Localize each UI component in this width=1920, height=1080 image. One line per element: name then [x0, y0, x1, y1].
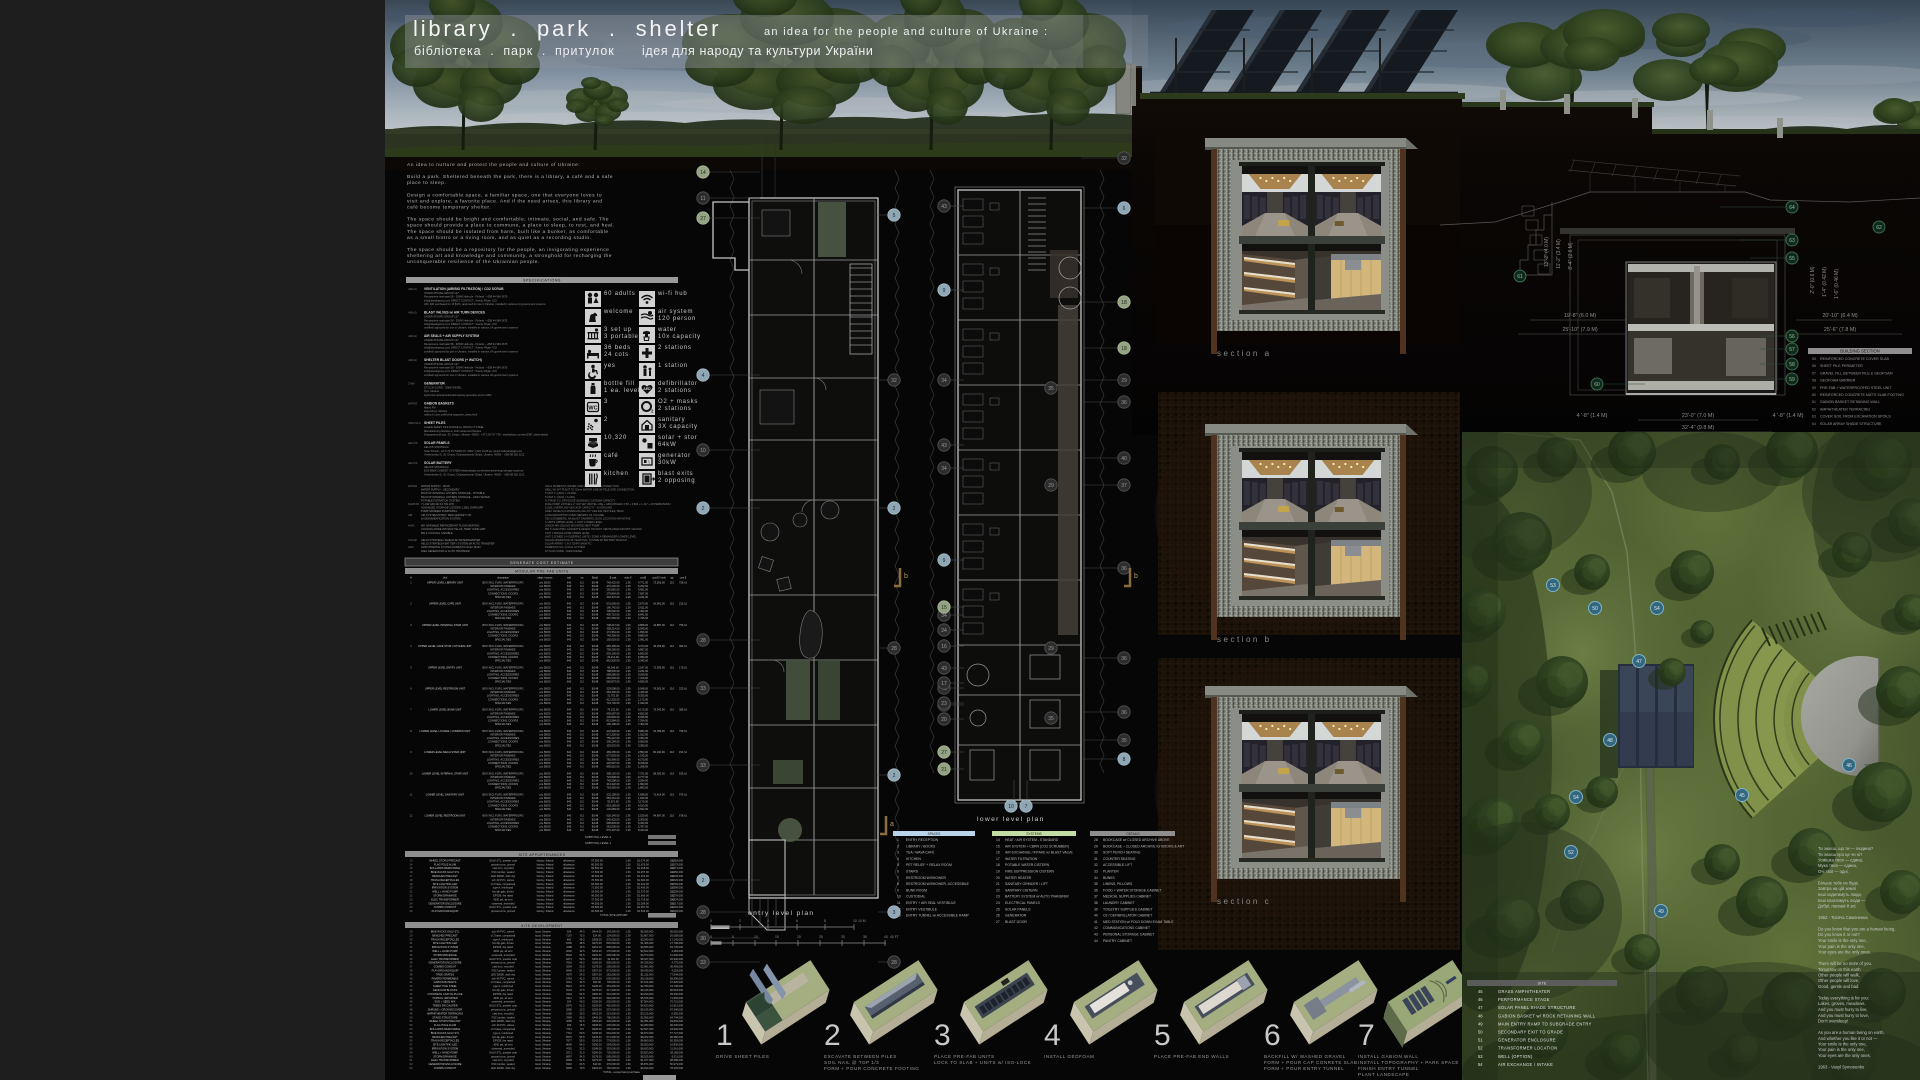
- svg-text:13WHEEL STOPS PRECASTGALV STL,: 13WHEEL STOPS PRECASTGALV STL, powder co…: [410, 858, 684, 862]
- svg-text:WATER FILTRATION: WATER FILTRATION: [1005, 857, 1038, 861]
- svg-text:38: 38: [1094, 901, 1098, 905]
- svg-text:50STAGE STRUCTUREFSC lumber, s: 50STAGE STRUCTUREFSC lumber, sealedlocal…: [410, 1015, 684, 1019]
- svg-text:36: 36: [1121, 400, 1127, 406]
- svg-text:LIGHTING, ACCESSORIESp/u 58/20: LIGHTING, ACCESSORIESp/u 58/206408.2$/14…: [487, 715, 649, 719]
- svg-text:STAIRS: STAIRS: [906, 870, 919, 874]
- svg-text:SPECIALTIESp/u 58/206408.2$/14: SPECIALTIESp/u 58/206408.2$/148763,655.0…: [495, 786, 649, 790]
- svg-text:44CONCRETE CAST-IN-PLACEEPS39,: 44CONCRETE CAST-IN-PLACEEPS39, fire rate…: [410, 992, 684, 996]
- svg-text:34: 34: [941, 613, 947, 619]
- svg-text:24: 24: [996, 901, 1000, 905]
- svg-text:COOLING MODE W/6,916F TELUS, T: COOLING MODE W/6,916F TELUS, TEMP COND H…: [421, 527, 486, 531]
- svg-text:SECONDARY EXIT TO GRADE: SECONDARY EXIT TO GRADE: [1498, 1030, 1563, 1035]
- svg-text:11: 11: [897, 901, 901, 905]
- svg-text:COVER SOIL FROM EXCAVATION SPO: COVER SOIL FROM EXCAVATION SPOILS: [1820, 415, 1891, 419]
- svg-text:AIR SYSTEM ATSMO" MED AERODITY: AIR SYSTEM ATSMO" MED AERODITY-35: [421, 513, 472, 517]
- svg-text:Добрі, ласкаві й злі.: Добрі, ласкаві й злі.: [1818, 904, 1857, 909]
- svg-text:BOOKCASE – CLOSED ARCHIVE for: BOOKCASE – CLOSED ARCHIVE for BOOKS & AR…: [1103, 844, 1184, 848]
- svg-text:1'-4" (0.42 M): 1'-4" (0.42 M): [1822, 267, 1828, 297]
- svg-text:20INCH MR CEILING MOUNTED HEA: 20INCH MR CEILING MOUNTED HEAT PUMP: [545, 524, 600, 528]
- svg-text:1: 1: [716, 1019, 733, 1052]
- svg-text:17: 17: [996, 857, 1000, 861]
- svg-text:INSTALL GABION WALL: INSTALL GABION WALL: [1358, 1054, 1418, 1059]
- svg-text:VENTILATION (AIR/BIO FILTRATIO: VENTILATION (AIR/BIO FILTRATION) / CO2 S…: [424, 287, 504, 291]
- svg-text:PERSONAL STORAGE CABINET: PERSONAL STORAGE CABINET: [1103, 933, 1154, 937]
- svg-text:INTERIOR FINISHESp/u 58/206408: INTERIOR FINISHESp/u 58/206408.2$/148695…: [490, 711, 648, 715]
- svg-text:36: 36: [1121, 710, 1127, 716]
- svg-text:SPECIALS: SPECIALS: [408, 421, 421, 425]
- svg-text:Your eyes are the only ones.: Your eyes are the only ones.: [1818, 950, 1871, 955]
- svg-text:57: 57: [1789, 347, 1795, 353]
- svg-text:Don't oversleep!: Don't oversleep!: [1818, 1019, 1848, 1024]
- svg-text:18: 18: [996, 863, 1000, 867]
- svg-text:59WELL + HAND PUMPGALV STL, po: 59WELL + HAND PUMPGALV STL, powder coatl…: [410, 1050, 684, 1054]
- svg-text:SITE DEVELOPMENT: SITE DEVELOPMENT: [521, 924, 563, 928]
- svg-text:57SITE LIGHTING LED4000 psi, a: 57SITE LIGHTING LED4000 psi, air entrloc…: [410, 1043, 684, 1047]
- svg-text:CONNECTIONS, DOORSp/u 58/20640: CONNECTIONS, DOORSp/u 58/206408.2$/14861…: [488, 803, 649, 807]
- svg-text:PLANTER: PLANTER: [1103, 870, 1119, 874]
- svg-text:GEN: GEN: [408, 545, 414, 549]
- svg-text:64: 64: [1812, 422, 1816, 426]
- svg-text:INSTALL TOPOGRAPHY + PARK SPAC: INSTALL TOPOGRAPHY + PARK SPACE: [1358, 1060, 1459, 1065]
- svg-text:Do you know it or not?: Do you know it or not?: [1818, 932, 1860, 937]
- svg-text:6: 6: [1123, 206, 1126, 212]
- svg-text:CONNECTIONS, DOORSp/u 58/20640: CONNECTIONS, DOORSp/u 58/206408.2$/14829…: [488, 655, 649, 659]
- svg-text:ARI, 300 purchased for 16 $17k: ARI, 300 purchased for 16 $17k, approved…: [424, 302, 546, 306]
- svg-text:7: 7: [1358, 1019, 1375, 1052]
- svg-text:29: 29: [1048, 483, 1054, 489]
- svg-text:35: 35: [1048, 386, 1054, 392]
- svg-text:info@atsafegroup.com: info@atsafegroup.com DIRECT CONTACT : Ks…: [424, 298, 497, 302]
- svg-text:10: 10: [700, 448, 706, 454]
- svg-text:LAUNDRY CABINET: LAUNDRY CABINET: [1103, 901, 1135, 905]
- svg-text:info@atsafegroup.com: info@atsafegroup.com DIRECT CONTACT : Ks…: [424, 369, 497, 373]
- svg-text:1'-6" (0.46 M): 1'-6" (0.46 M): [1834, 269, 1840, 299]
- svg-text:CONNECTIONS, DOORSp/u 58/20640: CONNECTIONS, DOORSp/u 58/206408.2$/14881…: [488, 719, 649, 723]
- svg-text:Other people will love,: Other people will love,: [1818, 978, 1859, 983]
- svg-text:section a: section a: [1217, 349, 1272, 358]
- svg-text:14: 14: [700, 170, 706, 176]
- svg-text:20: 20: [996, 876, 1000, 880]
- svg-text:3: 3: [897, 851, 899, 855]
- svg-text:10 M: 10 M: [858, 919, 866, 923]
- svg-text:56TRASH RECEPTACLESEPS39, fire: 56TRASH RECEPTACLESEPS39, fire ratedloca…: [410, 1039, 684, 1043]
- svg-text:46: 46: [1478, 997, 1483, 1002]
- svg-text:Інші кохатимуть люди —: Інші кохатимуть люди —: [1818, 898, 1866, 903]
- svg-text:10: 10: [897, 895, 901, 899]
- svg-text:LINENS, PILLOWS: LINENS, PILLOWS: [1103, 882, 1133, 886]
- svg-text:25: 25: [819, 935, 823, 939]
- svg-text:60: 60: [1594, 382, 1600, 388]
- svg-text:TEA / WAVA CAFÉ: TEA / WAVA CAFÉ: [906, 850, 935, 855]
- svg-text:COMMUNICATIONS CABINET: COMMUNICATIONS CABINET: [1103, 926, 1150, 930]
- svg-text:52: 52: [1568, 850, 1574, 856]
- svg-text:63: 63: [1789, 238, 1795, 244]
- svg-text:36: 36: [1121, 656, 1127, 662]
- svg-text:7: 7: [897, 876, 899, 880]
- svg-text:29: 29: [1048, 646, 1054, 652]
- svg-text:6: 6: [796, 919, 798, 923]
- svg-text:CONNECTIONS, DOORSp/u 58/20640: CONNECTIONS, DOORSp/u 58/206408.2$/14861…: [488, 697, 649, 701]
- svg-text:WATER: WATER: [408, 484, 417, 488]
- svg-text:54: 54: [1478, 1062, 1483, 1067]
- svg-text:DOMESTIC UA / LOCAL SYSTEM: DOMESTIC UA / LOCAL SYSTEM: [545, 545, 585, 549]
- svg-text:35: 35: [1094, 882, 1098, 886]
- svg-text:43: 43: [941, 443, 947, 449]
- svg-text:51WHEEL STOPS PRECASTLED 3000K: 51WHEEL STOPS PRECASTLED 3000K, dark sky…: [410, 1019, 684, 1023]
- svg-text:1952 - Тисяча Симоненка: 1952 - Тисяча Симоненка: [1818, 915, 1868, 920]
- svg-text:Maltry FM: Maltry FM: [424, 405, 436, 409]
- svg-text:2: 2: [702, 878, 705, 884]
- svg-text:GREY LEVELS (G.RIVER/LIN) GR+T: GREY LEVELS (G.RIVER/LIN) GR+TO" CEILING…: [545, 509, 624, 513]
- svg-text:24: 24: [941, 628, 947, 634]
- svg-text:29: 29: [1121, 378, 1127, 384]
- svg-text:8'-4" (2.6 M): 8'-4" (2.6 M): [1568, 242, 1574, 270]
- svg-text:INSTALL GEOFOAM: INSTALL GEOFOAM: [1044, 1054, 1094, 1059]
- svg-text:LIGHTING, ACCESSORIESp/u 58/20: LIGHTING, ACCESSORIESp/u 58/206408.2$/14…: [487, 736, 649, 740]
- svg-text:23ELEC TRANSFORMER4000 psi, ai: 23ELEC TRANSFORMER4000 psi, air entrfact…: [410, 897, 684, 901]
- svg-text:56: 56: [1789, 334, 1795, 340]
- svg-text:46: 46: [1846, 763, 1852, 769]
- svg-text:AIR(x2): AIR(x2): [408, 311, 417, 315]
- svg-text:CONNECTIONS, DOORSp/u 58/20640: CONNECTIONS, DOORSp/u 58/206408.2$/14874…: [488, 634, 649, 638]
- svg-text:9LOWER LEVEL MECH STAIR UNITBO: 9LOWER LEVEL MECH STAIR UNITBOX INCL FLR…: [410, 750, 687, 754]
- svg-text:17: 17: [941, 681, 947, 687]
- svg-text:5 UNIT X 1,824L = 24,000L: 5 UNIT X 1,824L = 24,000L: [545, 491, 577, 495]
- svg-text:48: 48: [1607, 738, 1613, 744]
- svg-text:Today everything is for you:: Today everything is for you:: [1818, 996, 1869, 1001]
- svg-text:48SHRUBS + GROUNDCOVERprecast: 48SHRUBS + GROUNDCOVERprecast conc, pinn…: [410, 1008, 684, 1012]
- svg-text:REINFORCED CONCRETE MAT'S SLAB: REINFORCED CONCRETE MAT'S SLAB FOOTING: [1820, 393, 1904, 397]
- svg-text:GEOFOAM BARRIER: GEOFOAM BARRIER: [1820, 379, 1856, 383]
- svg-text:25: 25: [996, 907, 1000, 911]
- svg-text:GENERATE COST ESTIMATE: GENERATE COST ESTIMATE: [510, 561, 574, 565]
- svg-text:MR 7x ELECTRIC CASSETTE HEADS: MR 7x ELECTRIC CASSETTE HEADS ON SOFT VE…: [545, 527, 642, 531]
- svg-text:CONNECTIONS, DOORSp/u 58/20640: CONNECTIONS, DOORSp/u 58/206408.2$/14827…: [488, 591, 649, 595]
- svg-text:18TRASH RECEPTACLESsch 40 PVC,: 18TRASH RECEPTACLESsch 40 PVC, valvesfac…: [410, 878, 684, 882]
- svg-text:Zaporizhya, Ukraine: Zaporizhya, Ukraine: [424, 409, 448, 413]
- svg-text:entry level plan: entry level plan: [748, 910, 815, 917]
- svg-text:SOLAR PANELS: SOLAR PANELS: [424, 441, 450, 445]
- svg-text:13'-2" (4.0 M): 13'-2" (4.0 M): [1544, 237, 1550, 267]
- svg-text:maltry.fm.com.ua/find-ka-organ: maltry.fm.com.ua/find-ka-organizer_ideas…: [424, 413, 478, 417]
- svg-text:23'-0" (7.0 M): 23'-0" (7.0 M): [1682, 413, 1715, 419]
- svg-text:52: 52: [1478, 1046, 1483, 1051]
- svg-text:61: 61: [1812, 400, 1816, 404]
- svg-text:35ELEC TRANSFORMERGALV STL, po: 35ELEC TRANSFORMERGALV STL, powder coatl…: [410, 957, 684, 961]
- svg-text:20'-10" (6.4 M): 20'-10" (6.4 M): [1822, 313, 1858, 319]
- svg-text:15BOLLARDS REMOVABLEcast iron,: 15BOLLARDS REMOVABLEcast iron, recycledf…: [410, 866, 684, 870]
- svg-text:SPECIALTIESp/u 58/206408.2$/14: SPECIALTIESp/u 58/206408.2$/148192,619.0…: [495, 637, 649, 641]
- svg-text:1: 1: [897, 838, 899, 842]
- svg-text:36GENERATOR ENCLOSUREprecast c: 36GENERATOR ENCLOSUREprecast conc, pinne…: [410, 961, 684, 965]
- svg-text:LIGHTING, ACCESSORIESp/u 58/20: LIGHTING, ACCESSORIESp/u 58/206408.2$/14…: [487, 651, 649, 655]
- svg-text:2: 2: [893, 506, 896, 512]
- svg-text:AIR: AIR: [408, 513, 412, 517]
- svg-text:Remarovere marinade 58 - 30540: Remarovere marinade 58 - 30540 Helmole -…: [424, 366, 508, 370]
- svg-text:54: 54: [1573, 795, 1579, 801]
- svg-text:GRAVEL FILL BETWEEN PILE & GEO: GRAVEL FILL BETWEEN PILE & GEOFOAM: [1820, 371, 1893, 375]
- svg-text:SOLAR PANEL SHADE STRUCTURE: SOLAR PANEL SHADE STRUCTURE: [1498, 1005, 1576, 1010]
- svg-text:12LOWER LEVEL RESTROOM UNITBOX: 12LOWER LEVEL RESTROOM UNITBOX INCL FLRS…: [410, 814, 688, 818]
- svg-text:SOLAR BATTERY: SOLAR BATTERY: [424, 461, 452, 465]
- svg-text:SUBTOTAL LEVEL 2: SUBTOTAL LEVEL 2: [585, 835, 612, 839]
- svg-text:TRANSFORMER LOCATION: TRANSFORMER LOCATION: [1498, 1046, 1557, 1051]
- svg-text:47: 47: [1478, 1005, 1483, 1010]
- svg-text:RESTROOM W/SHOWER, ACCESSIBLE: RESTROOM W/SHOWER, ACCESSIBLE: [906, 882, 970, 886]
- svg-text:RESTROOM W/SHOWER: RESTROOM W/SHOWER: [906, 876, 946, 880]
- svg-text:unconquerable resilience of th: unconquerable resilience of the Ukrainia…: [407, 259, 540, 265]
- svg-text:29BENCHES PRECASTcl 2 base, co: 29BENCHES PRECASTcl 2 base, compactedloc…: [410, 933, 684, 937]
- svg-text:39TREE GRATESLED 3000K, dark s: 39TREE GRATESLED 3000K, dark skylocal, U…: [410, 972, 684, 976]
- svg-text:Other people will walk,: Other people will walk,: [1818, 973, 1860, 978]
- svg-text:32IRRIGATION SYSTEMEPS39, fire: 32IRRIGATION SYSTEMEPS39, fire ratedloca…: [410, 945, 684, 949]
- svg-text:20IRRIGATION SYSTEMtype A, rei: 20IRRIGATION SYSTEMtype A, reinforcedfac…: [410, 886, 684, 890]
- svg-text:BACKFILL W/ WASHED GRAVEL: BACKFILL W/ WASHED GRAVEL: [1264, 1054, 1346, 1059]
- svg-text:38PLAYGROUND EQUIPFSC lumber,: 38PLAYGROUND EQUIPFSC lumber, sealedloca…: [410, 969, 684, 973]
- svg-text:43: 43: [941, 666, 947, 672]
- svg-text:CONNECTIONS, DOORSp/u 58/20640: CONNECTIONS, DOORSp/u 58/206408.2$/14840…: [488, 613, 649, 617]
- svg-text:10: 10: [754, 935, 758, 939]
- svg-text:SPECIALTIESp/u 58/206408.2$/14: SPECIALTIESp/u 58/206408.2$/148132,683.0…: [495, 807, 649, 811]
- svg-text:19'-8" (6.0 M): 19'-8" (6.0 M): [1564, 313, 1597, 319]
- svg-text:34STORM DRAINAGEscreened, amen: 34STORM DRAINAGEscreened, amendedlocal, …: [410, 953, 684, 957]
- svg-text:as a small bistro or a living: as a small bistro or a living room, and …: [407, 235, 592, 241]
- svg-text:5: 5: [732, 935, 734, 939]
- svg-text:LIGHTING, ACCESSORIESp/u 58/20: LIGHTING, ACCESSORIESp/u 58/206408.2$/14…: [487, 609, 649, 613]
- svg-text:UNIAIR ATSAFE-GROUP 127: UNIAIR ATSAFE-GROUP 127: [424, 315, 459, 319]
- svg-text:43: 43: [941, 204, 947, 210]
- svg-text:5: 5: [897, 863, 899, 867]
- svg-text:GRASS AMPHITHEATER: GRASS AMPHITHEATER: [1498, 989, 1550, 994]
- svg-text:PLACE PRE-FAB END WALLS: PLACE PRE-FAB END WALLS: [1154, 1054, 1229, 1059]
- svg-text:49: 49: [1658, 909, 1664, 915]
- svg-text:10: 10: [1008, 804, 1014, 810]
- svg-text:10LOWER LEVEL INTERNAL STAIR U: 10LOWER LEVEL INTERNAL STAIR UNITBOX INC…: [410, 771, 688, 775]
- svg-text:26: 26: [996, 914, 1000, 918]
- svg-text:34: 34: [1094, 876, 1098, 880]
- svg-text:CONNECTIONS, DOORSp/u 58/20640: CONNECTIONS, DOORSp/u 58/206408.2$/14831…: [488, 782, 649, 786]
- svg-text:STYLON CORD - 30kW DIESEL: STYLON CORD - 30kW DIESEL: [545, 549, 583, 553]
- svg-text:33: 33: [1094, 870, 1098, 874]
- svg-text:Remarovere marinade 58 - 30540: Remarovere marinade 58 - 30540 Helmole -…: [424, 318, 508, 322]
- svg-text:certified/ approved for use in: certified/ approved for use in Ukraine, …: [424, 349, 519, 353]
- svg-text:43: 43: [1094, 933, 1098, 937]
- svg-text:PERFORMANCE STAGE: PERFORMANCE STAGE: [1498, 997, 1550, 1002]
- svg-text:SUBTOTAL LEVEL 1: SUBTOTAL LEVEL 1: [585, 841, 612, 845]
- svg-text:And you must hurry to love,: And you must hurry to love,: [1818, 1013, 1869, 1018]
- svg-text:30: 30: [841, 935, 845, 939]
- svg-text:63: 63: [1812, 415, 1816, 419]
- svg-text:FINISH ENTRY TUNNEL: FINISH ENTRY TUNNEL: [1358, 1066, 1419, 1071]
- svg-text:LIGHTING, ACCESSORIESp/u 58/20: LIGHTING, ACCESSORIESp/u 58/206408.2$/14…: [487, 757, 649, 761]
- svg-text:1UPPER LEVEL LIBRARY UNITBOX I: 1UPPER LEVEL LIBRARY UNITBOX INCL FLRS, …: [410, 581, 687, 585]
- svg-text:LIGHTING, ACCESSORIESp/u 58/20: LIGHTING, ACCESSORIESp/u 58/206408.2$/14…: [487, 673, 649, 677]
- svg-text:BACKUP INTERNAL CISTERN STORAG: BACKUP INTERNAL CISTERN STORAGE - GRAY W…: [421, 495, 490, 499]
- svg-text:CONNECTIONS, DOORSp/u 58/20640: CONNECTIONS, DOORSp/u 58/206408.2$/14820…: [488, 740, 649, 744]
- svg-text:INTERIOR FINISHESp/u 58/206408: INTERIOR FINISHESp/u 58/206408.2$/148788…: [490, 669, 648, 673]
- svg-text:28: 28: [1094, 838, 1098, 842]
- svg-text:14FLAG POLE ALUMprecast conc,: 14FLAG POLE ALUMprecast conc, pinnedfact…: [410, 862, 684, 866]
- svg-text:PUMP GRINDER PUMPS/MILL: PUMP GRINDER PUMPS/MILL: [421, 509, 458, 513]
- svg-text:2'-0" (0.6 M): 2'-0" (0.6 M): [1810, 266, 1816, 294]
- svg-text:SANITARY CISTERN: SANITARY CISTERN: [1005, 888, 1038, 892]
- svg-text:INTERIOR FINISHESp/u 58/206408: INTERIOR FINISHESp/u 58/206408.2$/148723…: [490, 775, 648, 779]
- svg-text:20: 20: [797, 935, 801, 939]
- svg-text:Ти знаєш про це чи ні?: Ти знаєш про це чи ні?: [1818, 852, 1863, 857]
- svg-text:LIGHTING, ACCESSORIESp/u 58/20: LIGHTING, ACCESSORIESp/u 58/206408.2$/14…: [487, 779, 649, 783]
- svg-text:2: 2: [739, 919, 741, 923]
- svg-text:8: 8: [1123, 757, 1126, 763]
- svg-text:16BIKE RACKS GALV STLFSC lumbe: 16BIKE RACKS GALV STLFSC lumber, sealedf…: [410, 870, 684, 874]
- svg-text:18: 18: [1121, 300, 1127, 306]
- svg-text:0: 0: [710, 935, 712, 939]
- svg-text:40: 40: [1121, 456, 1127, 462]
- svg-text:6UPPER LEVEL RESTROOM UNITBOX: 6UPPER LEVEL RESTROOM UNITBOX INCL FLRS,…: [410, 687, 687, 691]
- svg-text:visit and explore, a favorite: visit and explore, a favorite place. And…: [407, 198, 603, 204]
- svg-text:UNIT 1 SINGLE ZONE UPPER LEVE: UNIT 1 SINGLE ZONE UPPER LEVEL: [545, 531, 590, 535]
- svg-text:BUNK ROOM: BUNK ROOM: [906, 888, 927, 892]
- svg-text:15: 15: [996, 844, 1000, 848]
- svg-text:DRIVE SHEET PILES: DRIVE SHEET PILES: [716, 1054, 769, 1059]
- svg-text:Manufacturing facilities in bo: Manufacturing facilities in both Latvia …: [424, 429, 482, 433]
- svg-text:LIGHTING, ACCESSORIESp/u 58/20: LIGHTING, ACCESSORIESp/u 58/206408.2$/14…: [487, 694, 649, 698]
- svg-text:AIR EXCHANGE / INTAKE: AIR EXCHANGE / INTAKE: [1498, 1062, 1553, 1067]
- svg-text:AIR(x2): AIR(x2): [408, 287, 417, 291]
- svg-text:WATER SUPPLY - MAIN: WATER SUPPLY - MAIN: [421, 484, 450, 488]
- svg-text:KITCHEN: KITCHEN: [906, 857, 921, 861]
- svg-text:Інші ходитимуть люди,: Інші ходитимуть люди,: [1818, 892, 1862, 897]
- svg-text:47TREES 3IN CALIPERGALV STL, p: 47TREES 3IN CALIPERGALV STL, powder coat…: [410, 1004, 684, 1008]
- svg-text:POTABLE WATER CISTERN: POTABLE WATER CISTERN: [1005, 863, 1050, 867]
- svg-text:39: 39: [1094, 907, 1098, 911]
- svg-text:16: 16: [996, 851, 1000, 855]
- svg-text:Design a comfortable space, a: Design a comfortable space, a familiar s…: [407, 192, 602, 198]
- svg-text:28BIKE RACKS GALV STLsch 40 PV: 28BIKE RACKS GALV STLsch 40 PVC, valvesl…: [410, 930, 684, 934]
- svg-text:62: 62: [1812, 407, 1816, 411]
- svg-text:SOLAR ARRAY SHADE STRUCTURE: SOLAR ARRAY SHADE STRUCTURE: [1820, 422, 1882, 426]
- svg-text:STYLON CORD - 30kW DIESEL: STYLON CORD - 30kW DIESEL: [424, 385, 462, 389]
- svg-text:WATER: WATER: [408, 401, 417, 405]
- svg-text:25'-6" (7.8 M): 25'-6" (7.8 M): [1824, 327, 1857, 333]
- svg-text:36: 36: [1121, 566, 1127, 572]
- svg-text:33: 33: [700, 763, 706, 769]
- svg-text:AIR SEALS + AIR SUPPLY SYSTEM: AIR SEALS + AIR SUPPLY SYSTEM: [424, 334, 479, 338]
- svg-text:5,200L OVERFLOW / BACKUP CAPAC: 5,200L OVERFLOW / BACKUP CAPACITY - IN G…: [545, 506, 612, 510]
- svg-text:LOCK TO SLAB + UNITS w/ ISO-L: LOCK TO SLAB + UNITS w/ ISO-LOCK: [934, 1060, 1032, 1065]
- svg-text:51: 51: [1478, 1038, 1483, 1043]
- svg-text:SPECIALTIESp/u 58/206408.2$/14: SPECIALTIESp/u 58/206408.2$/148106,199.0…: [495, 722, 649, 726]
- svg-text:HELIOS: HELIOS: [408, 461, 418, 465]
- svg-text:10: 10: [853, 919, 857, 923]
- svg-text:WATER HEATER: WATER HEATER: [1005, 876, 1032, 880]
- svg-text:27: 27: [700, 216, 706, 222]
- svg-text:59: 59: [1812, 386, 1816, 390]
- svg-text:56: 56: [1812, 364, 1816, 368]
- svg-text:29: 29: [1094, 844, 1098, 848]
- svg-text:20: 20: [941, 717, 947, 723]
- svg-text:SOIL NAIL @ TOP 1/3: SOIL NAIL @ TOP 1/3: [824, 1060, 879, 1065]
- svg-text:60: 60: [1812, 393, 1816, 397]
- svg-text:61: 61: [1517, 274, 1523, 280]
- svg-text:HELIO STRATEGIA SHIELD W/ WATE: HELIO STRATEGIA SHIELD W/ WATERSMARTER: [421, 538, 480, 542]
- svg-text:certified/ approved for use in: certified/ approved for use in Ukraine, …: [424, 373, 519, 377]
- svg-text:MODULAR PRE-FAB UNITS: MODULAR PRE-FAB UNITS: [515, 570, 569, 574]
- svg-text:UNIAIR ATSAFE-GROUP 127: UNIAIR ATSAFE-GROUP 127: [424, 362, 459, 366]
- svg-text:45: 45: [1478, 989, 1483, 994]
- svg-text:28: 28: [700, 910, 706, 916]
- svg-text:13: 13: [897, 914, 901, 918]
- svg-text:5: 5: [1154, 1019, 1171, 1052]
- svg-text:MED STATION w/ FOLD DOWN EXAM: MED STATION w/ FOLD DOWN EXAM TABLE: [1103, 920, 1174, 924]
- svg-text:SOLAR PANELS: SOLAR PANELS: [1005, 907, 1031, 911]
- svg-text:49: 49: [1478, 1021, 1483, 1026]
- svg-text:GENERATOR ENCLOSURE: GENERATOR ENCLOSURE: [1498, 1038, 1556, 1043]
- svg-text:Your pain is the only one,: Your pain is the only one,: [1818, 944, 1865, 949]
- svg-text:5UPPER LEVEL ENTRY UNITBOX INC: 5UPPER LEVEL ENTRY UNITBOX INCL FLRS, WA…: [410, 665, 687, 669]
- svg-text:34: 34: [941, 378, 947, 384]
- svg-text:GABION BASKET w/ ROCK RETAININ: GABION BASKET w/ ROCK RETAINING WALL: [1498, 1013, 1596, 1018]
- svg-text:AMPHITHEATER TERRACING: AMPHITHEATER TERRACING: [1820, 407, 1870, 411]
- svg-text:37COMMS CONDUITcast iron, recy: 37COMMS CONDUITcast iron, recycledlocal,…: [410, 965, 684, 969]
- svg-text:2: 2: [897, 844, 899, 848]
- svg-text:50: 50: [1592, 606, 1598, 612]
- svg-text:Kyiv, Ukraine: Kyiv, Ukraine: [424, 389, 440, 393]
- svg-text:SHEET PILE PERIMETER: SHEET PILE PERIMETER: [1820, 364, 1863, 368]
- svg-text:SPECIALTIESp/u 58/206408.2$/14: SPECIALTIESp/u 58/206408.2$/148267,666.0…: [495, 616, 649, 620]
- svg-text:LIBRARY / BOOKS: LIBRARY / BOOKS: [906, 844, 936, 848]
- svg-text:INTERIOR FINISHESp/u 58/206408: INTERIOR FINISHESp/u 58/206408.2$/148263…: [490, 690, 648, 694]
- svg-text:30kw GENERATOR w/ AUTO TRANSFE: 30kw GENERATOR w/ AUTO TRANSFER: [421, 549, 470, 553]
- svg-text:27kW: 27kW: [408, 381, 415, 385]
- svg-text:FORM + POUR CAP CONRETE SLAB: FORM + POUR CAP CONRETE SLAB: [1264, 1060, 1357, 1065]
- svg-text:Yevhenivska St, 26, Dnipro, Dn: Yevhenivska St, 26, Dnipro, Dnipropetrov…: [424, 453, 525, 457]
- svg-text:Remarovere marinade 58 - 30540: Remarovere marinade 58 - 30540 Helmole -…: [424, 342, 508, 346]
- svg-text:22: 22: [996, 888, 1000, 892]
- svg-text:WATER SUPPLY - SECONDARY: WATER SUPPLY - SECONDARY: [421, 488, 460, 492]
- svg-text:GRID INTERTIE SYSTEM DOMESTIC: GRID INTERTIE SYSTEM DOMESTIC ELEC MAIN: [421, 545, 481, 549]
- svg-text:The space should be bright and: The space should be bright and comfortab…: [407, 217, 609, 223]
- svg-text:PRE-FAB + WATERPROOFED STEEL U: PRE-FAB + WATERPROOFED STEEL UNIT: [1820, 386, 1892, 390]
- svg-text:Your smile is the only one,: Your smile is the only one,: [1818, 938, 1867, 943]
- svg-text:4: 4: [1044, 1019, 1061, 1052]
- svg-text:AIR EXCHANGE / INTAKE w/ BLAST: AIR EXCHANGE / INTAKE w/ BLAST VALVE: [1005, 851, 1074, 855]
- svg-text:MR X COOLING CAPABLE: MR X COOLING CAPABLE: [421, 531, 453, 535]
- svg-text:SITE APPURTENANCES: SITE APPURTENANCES: [519, 853, 566, 857]
- svg-text:48: 48: [1478, 1013, 1483, 1018]
- svg-text:Більше тебе не буде.: Більше тебе не буде.: [1818, 881, 1859, 886]
- svg-text:LIGHTING, ACCESSORIESp/u 58/20: LIGHTING, ACCESSORIESp/u 58/206408.2$/14…: [487, 630, 649, 634]
- svg-text:There will be no more of you.: There will be no more of you.: [1818, 961, 1872, 966]
- svg-text:26PLAYGROUND EQUIPprecast conc: 26PLAYGROUND EQUIPprecast conc, pinnedfa…: [410, 909, 684, 913]
- svg-text:ENTRY RECEPTION: ENTRY RECEPTION: [906, 838, 939, 842]
- svg-text:WELL W/ 24T PLANT TO 32mm WATE: WELL W/ 24T PLANT TO 32mm WATER LINE W/ …: [545, 488, 634, 492]
- svg-text:45TOPSOIL IMPORTED4000 psi, ai: 45TOPSOIL IMPORTED4000 psi, air entrloca…: [410, 996, 684, 1000]
- svg-text:46SOD + SEED MIXscreened, amen: 46SOD + SEED MIXscreened, amendedlocal, …: [410, 1000, 684, 1004]
- svg-text:O2 / DEFIBRILLATOR CABINET: O2 / DEFIBRILLATOR CABINET: [1103, 914, 1152, 918]
- svg-text:18: 18: [1121, 346, 1127, 352]
- svg-text:place to sleep.: place to sleep.: [407, 180, 446, 186]
- svg-text:ADVANCED STORAGE CISTERN 1,28: ADVANCED STORAGE CISTERN 1,280L GAP/SUPP: [421, 506, 483, 510]
- svg-text:SANITARY GRINDER / LIFT: SANITARY GRINDER / LIFT: [1005, 882, 1048, 886]
- svg-text:INTERIOR FINISHESp/u 58/206408: INTERIOR FINISHESp/u 58/206408.2$/148671…: [490, 733, 648, 737]
- svg-text:SHELTER BLAST DOORS (+ WATCH): SHELTER BLAST DOORS (+ WATCH): [424, 358, 482, 362]
- svg-text:6: 6: [897, 870, 899, 874]
- svg-text:FORM + POUR CONCRETE FOOTING: FORM + POUR CONCRETE FOOTING: [824, 1066, 919, 1071]
- svg-text:Tomorrow on this earth: Tomorrow on this earth: [1818, 967, 1861, 972]
- svg-text:SPECIALTIESp/u 58/206408.2$/14: SPECIALTIESp/u 58/206408.2$/148895,510.0…: [495, 765, 649, 769]
- svg-text:19SITE LIGHTING LEDcl 2 base,: 19SITE LIGHTING LEDcl 2 base, compactedf…: [410, 882, 684, 886]
- svg-text:WC: WC: [588, 406, 597, 412]
